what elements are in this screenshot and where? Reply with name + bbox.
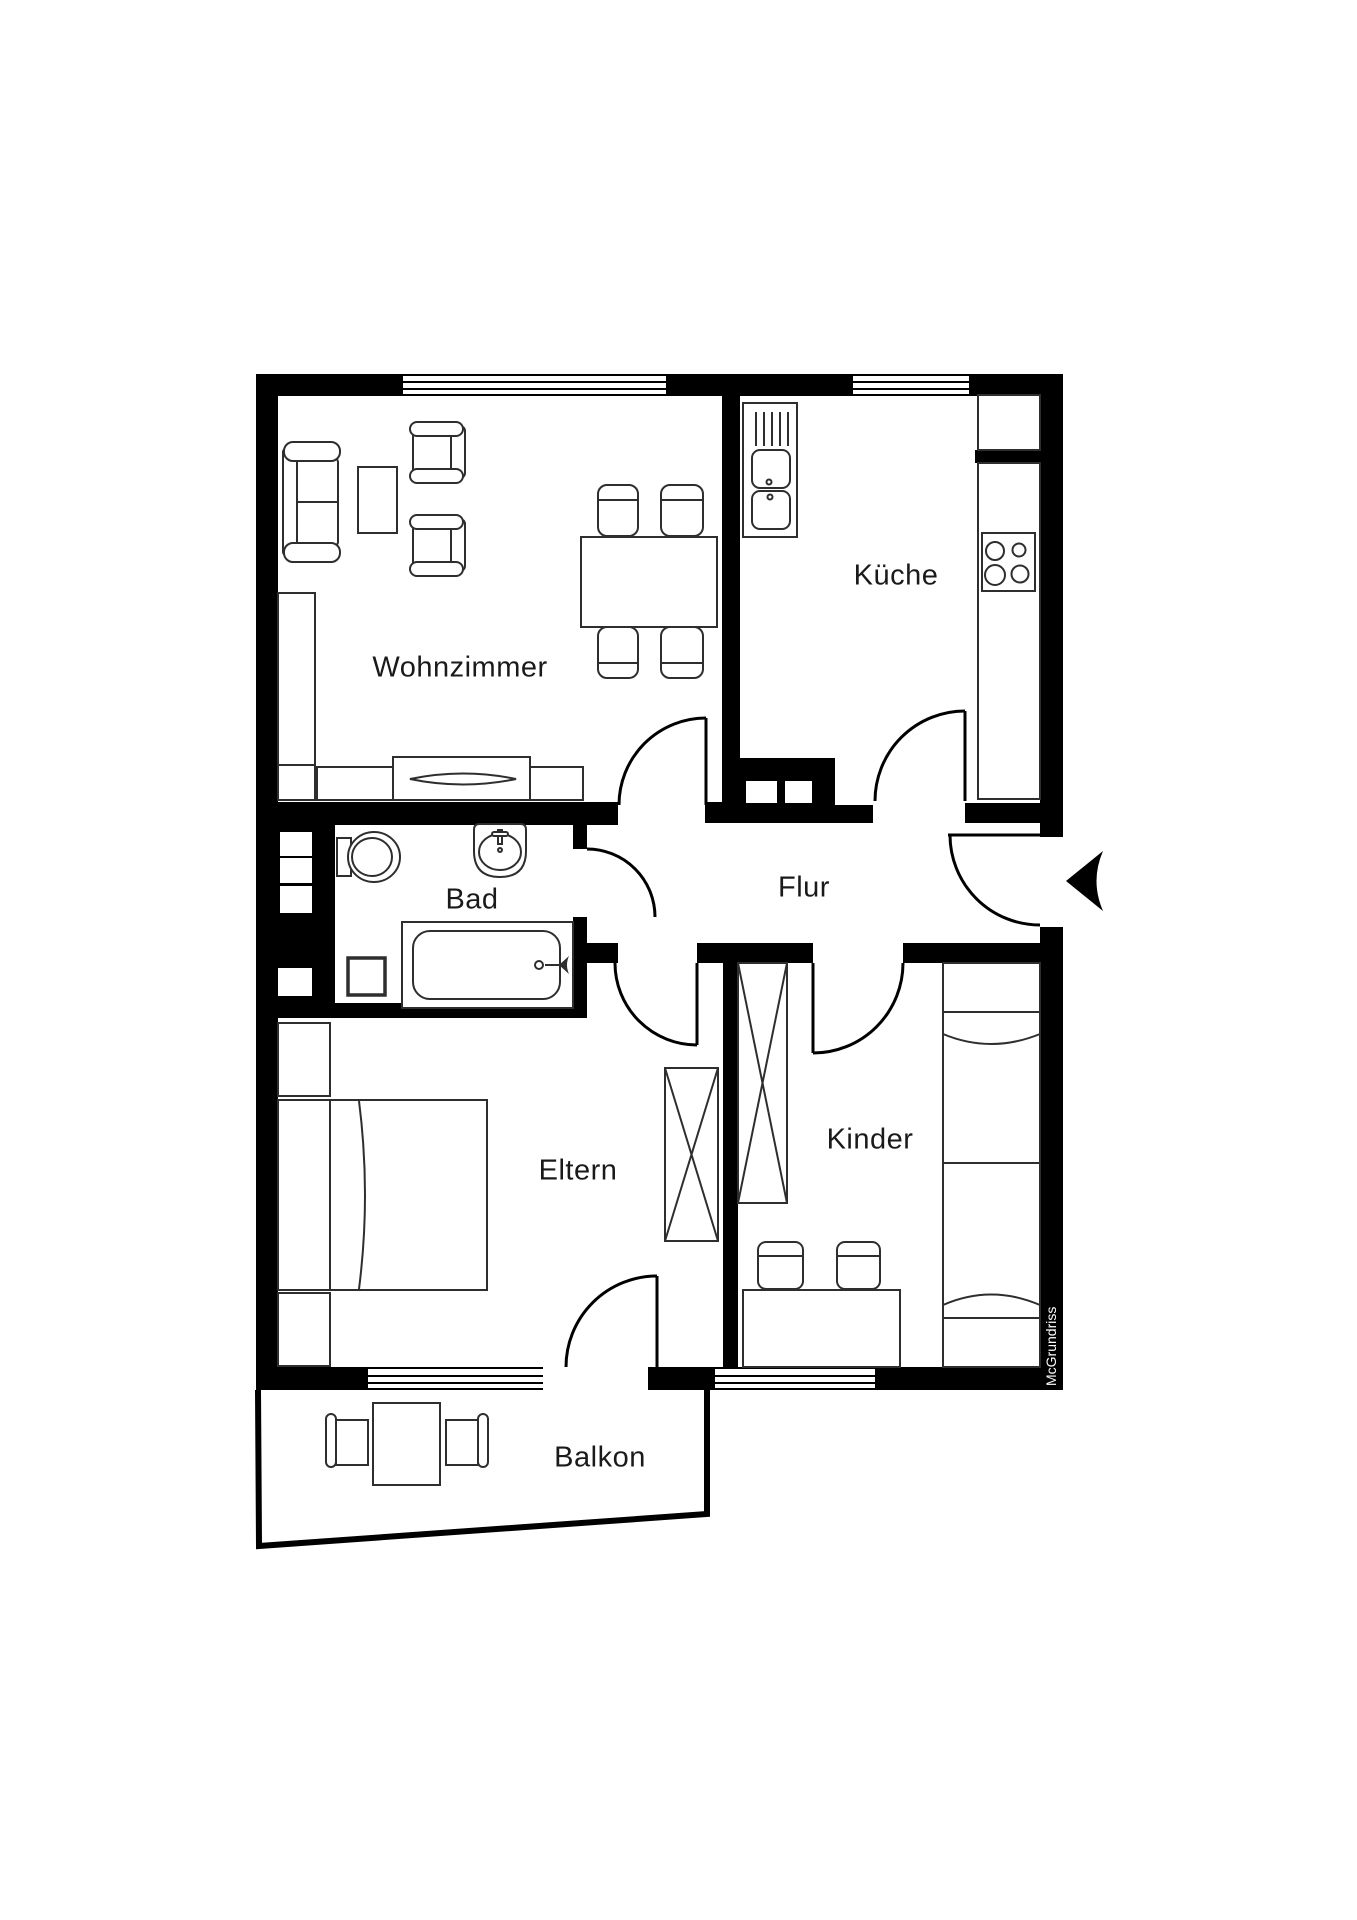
door-entrance xyxy=(948,835,1062,925)
window-living-room xyxy=(403,374,666,396)
watermark-text: McGrundriss xyxy=(1043,1307,1059,1386)
washing-machine xyxy=(348,958,385,995)
sofa xyxy=(283,442,340,562)
entrance-arrow-icon xyxy=(1066,851,1103,911)
coffee-table xyxy=(358,467,397,533)
toilet xyxy=(337,832,400,882)
shelf xyxy=(278,593,315,800)
floor-plan-drawing xyxy=(0,0,1357,1920)
window-kitchen xyxy=(853,374,969,396)
balcony-door-opening xyxy=(543,1367,648,1390)
stove xyxy=(982,533,1035,591)
balcony-set xyxy=(326,1403,488,1485)
door-bath xyxy=(587,849,655,917)
room-label-flur: Flur xyxy=(778,872,830,905)
bath-sink xyxy=(474,824,526,877)
room-label-balkon: Balkon xyxy=(554,1442,646,1475)
door-kids xyxy=(813,963,903,1053)
window-parents xyxy=(368,1367,543,1390)
kids-bed xyxy=(943,963,1040,1367)
room-label-bad: Bad xyxy=(445,884,498,917)
bathtub xyxy=(402,922,573,1008)
door-parents xyxy=(615,963,697,1045)
room-label-kinder: Kinder xyxy=(827,1124,914,1157)
door-kitchen xyxy=(875,711,965,801)
nightstand-top xyxy=(278,1023,330,1096)
wardrobe-parents xyxy=(665,1068,718,1241)
door-balcony xyxy=(566,1276,657,1367)
window-kids xyxy=(715,1367,875,1390)
tv-sideboard xyxy=(317,757,583,800)
double-bed xyxy=(278,1100,487,1290)
room-label-kueche: Küche xyxy=(854,560,939,593)
room-label-wohnzimmer: Wohnzimmer xyxy=(372,652,547,685)
kitchen-sink-unit xyxy=(743,403,797,537)
armchair-1 xyxy=(410,422,465,483)
wardrobe-kids xyxy=(738,963,787,1203)
door-living-room xyxy=(619,718,706,805)
room-label-eltern: Eltern xyxy=(539,1155,618,1188)
floor-plan-canvas: Wohnzimmer Küche Bad Flur Eltern Kinder … xyxy=(0,0,1357,1920)
dining-set xyxy=(581,485,717,678)
armchair-2 xyxy=(410,515,465,576)
desk xyxy=(743,1242,900,1367)
nightstand-bottom xyxy=(278,1293,330,1366)
